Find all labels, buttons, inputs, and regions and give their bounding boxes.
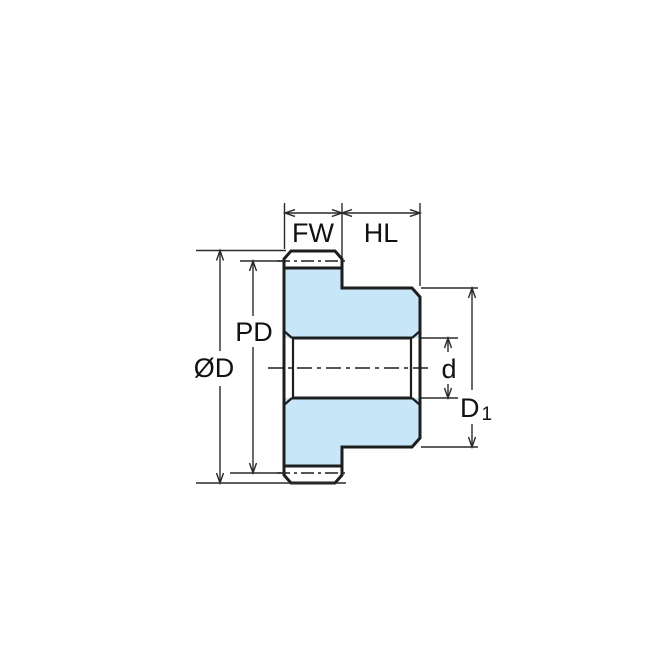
gear-dimension-diagram: FW HL ØD PD d xyxy=(0,0,670,670)
hub-diameter-subscript: 1 xyxy=(482,404,493,425)
dimension-hub-length: HL xyxy=(342,203,420,286)
pitch-diameter-label: PD xyxy=(235,317,273,347)
bore-diameter-label: d xyxy=(441,354,456,384)
diagram-canvas: FW HL ØD PD d xyxy=(0,0,670,670)
hub-length-label: HL xyxy=(364,218,399,248)
bottom-tooth xyxy=(284,466,342,483)
dimension-hub-diameter: D 1 xyxy=(421,288,492,447)
dimension-face-width: FW xyxy=(285,203,343,258)
dimension-pitch-diameter: PD xyxy=(230,261,284,473)
hub-diameter-label: D xyxy=(460,393,480,423)
face-width-label: FW xyxy=(292,218,334,248)
outside-diameter-label: ØD xyxy=(194,353,235,383)
gear-cross-section xyxy=(268,251,432,483)
top-tooth xyxy=(284,251,342,268)
